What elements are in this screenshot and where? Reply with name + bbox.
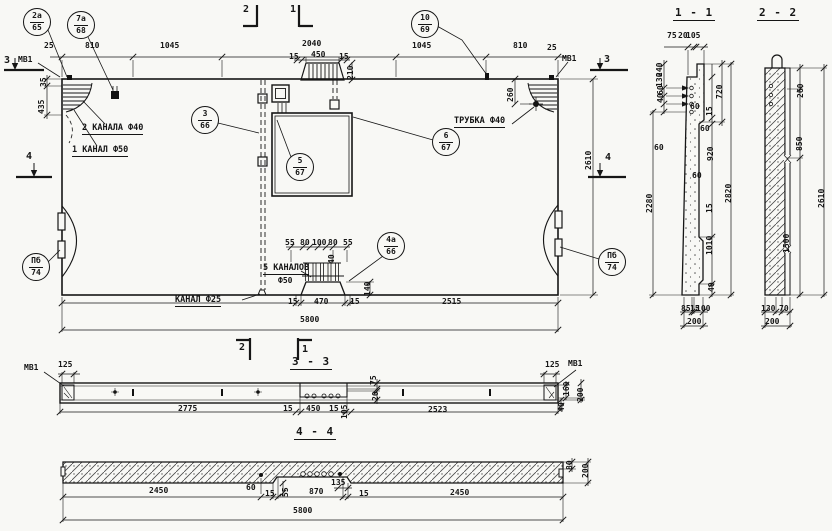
dim-200: 200: [576, 388, 585, 402]
drawing-linework: [0, 0, 832, 531]
callout-2a-65: 2а 65: [23, 8, 51, 36]
dim-2515: 2515: [442, 297, 461, 306]
dim-25: 25: [547, 43, 557, 52]
dim-2280: 2280: [645, 194, 654, 213]
dim-15: 15: [705, 203, 714, 213]
dim-105: 105: [686, 31, 700, 40]
dim-75: 75: [369, 375, 378, 385]
dim-60: 60: [246, 483, 256, 492]
dim-470: 470: [314, 297, 328, 306]
callout-sheet: 69: [420, 25, 430, 35]
label-mv1: МВ1: [24, 363, 38, 372]
dim-55: 55: [343, 238, 353, 247]
callout-4a-66: 4а 66: [377, 232, 405, 260]
label-tube-d40: ТРУБКА Ф40: [454, 116, 505, 128]
dim-35: 35: [39, 77, 48, 87]
dim-15: 15: [288, 297, 298, 306]
callout-pb-74-left: Пб 74: [22, 253, 50, 281]
dim-15: 15: [283, 404, 293, 413]
callout-sheet: 67: [295, 168, 305, 178]
label-mv1: МВ1: [568, 359, 582, 368]
callout-pb-74-right: Пб 74: [598, 248, 626, 276]
callout-sheet: 66: [386, 247, 396, 257]
dim-40: 40: [707, 282, 716, 292]
callout-position: 4а: [384, 235, 398, 247]
callout-7a-68: 7а 68: [67, 11, 95, 39]
cut-mark-1-top: 1: [290, 4, 296, 15]
leader-lines: [38, 26, 599, 300]
cut-mark-4-right: 4: [605, 152, 611, 163]
dim-15: 15: [329, 404, 339, 413]
dim-2610: 2610: [584, 151, 593, 170]
callout-sheet: 74: [31, 268, 41, 278]
section-4-4-profile: [63, 462, 563, 483]
callout-sheet: 74: [607, 263, 617, 273]
dim-5800: 5800: [293, 506, 312, 515]
label-5-channels: 5 КАНАЛОВ: [263, 263, 309, 275]
callout-position: 2а: [30, 11, 44, 23]
label-channel-d25: КАНАЛ Ф25: [175, 295, 221, 307]
callout-5-67: 5 67: [286, 153, 314, 181]
top-recess: [301, 63, 344, 80]
dim-260: 260: [796, 84, 805, 98]
dim-2610: 2610: [817, 189, 826, 208]
dim-200: 200: [765, 317, 779, 326]
dim-5800: 5800: [300, 315, 319, 324]
dim-130: 130: [761, 304, 775, 313]
dim-15: 15: [339, 52, 349, 61]
callout-sheet: 66: [200, 121, 210, 131]
cut-mark-2-bottom: 2: [239, 342, 245, 353]
section-title-1-1: 1 - 1: [673, 6, 715, 21]
cut-mark-1-bottom: 1: [302, 344, 308, 355]
dim-75: 75: [667, 31, 677, 40]
junction-box: [272, 85, 289, 102]
dim-80: 80: [565, 460, 574, 470]
dim-870: 870: [309, 487, 323, 496]
dim-25: 25: [44, 41, 54, 50]
dim-80: 80: [300, 238, 310, 247]
section-2-2-profile: [765, 68, 785, 295]
dim-260: 260: [506, 88, 515, 102]
dim-200: 200: [687, 317, 701, 326]
hidden-channel-lines: [261, 80, 265, 290]
dim-40: 40: [656, 93, 665, 103]
section-title-3-3: 3 - 3: [290, 355, 332, 370]
label-2-channels-d40: 2 КАНАЛА Ф40: [82, 123, 143, 135]
dim-450: 450: [311, 50, 325, 59]
label-mv1: МВ1: [18, 55, 32, 64]
callout-6-67: 6 67: [432, 128, 460, 156]
dim-15: 15: [265, 489, 275, 498]
dim-450: 450: [306, 404, 320, 413]
dim-55: 55: [285, 238, 295, 247]
cut-mark-4-left: 4: [26, 151, 32, 162]
dim-15: 15: [350, 297, 360, 306]
dim-2040: 2040: [302, 39, 321, 48]
section-title-2-2: 2 - 2: [757, 6, 799, 21]
dim-40: 40: [557, 402, 566, 412]
dim-1010: 1010: [705, 236, 714, 255]
dim-1045: 1045: [412, 41, 431, 50]
label-mv1: МВ1: [562, 54, 576, 63]
dim-15: 15: [705, 106, 714, 116]
dim-160: 160: [562, 382, 571, 396]
callout-sheet: 67: [441, 143, 451, 153]
dim-140: 140: [363, 282, 372, 296]
embed-anchor: [111, 91, 119, 99]
dim-2775: 2775: [178, 404, 197, 413]
dim-200: 200: [581, 464, 590, 478]
dim-210: 210: [346, 66, 355, 80]
dim-125: 125: [545, 360, 559, 369]
section-4-4: [60, 458, 591, 523]
dim-2450: 2450: [149, 486, 168, 495]
dim-60: 60: [700, 124, 710, 133]
dim-720: 720: [715, 85, 724, 99]
plan-view: [58, 63, 562, 295]
callout-position: 3: [198, 109, 212, 121]
dim-60: 60: [654, 143, 664, 152]
dim-1045: 1045: [160, 41, 179, 50]
bottom-plinth: [301, 282, 345, 295]
callout-position: 10: [418, 13, 432, 25]
dim-70: 70: [779, 304, 789, 313]
cut-mark-3-right: 3: [604, 54, 610, 65]
callout-position: Пб: [29, 256, 43, 268]
dim-60: 60: [692, 171, 702, 180]
callout-sheet: 68: [76, 26, 86, 36]
dim-920: 920: [706, 147, 715, 161]
cut-mark-2-top: 2: [243, 4, 249, 15]
label-1-channel-d50: 1 КАНАЛ Ф50: [72, 145, 128, 157]
dim-2820: 2820: [724, 184, 733, 203]
dim-100: 100: [312, 238, 326, 247]
dim-810: 810: [513, 41, 527, 50]
opening: [272, 113, 352, 196]
blueprint-sheet: 2а 65 7а 68 10 69 3 66 5 67 6 67 4а 66 П…: [0, 0, 832, 531]
dim-80: 80: [328, 238, 338, 247]
dim-55: 55: [281, 487, 290, 497]
label-5-channels-dia: Ф50: [278, 276, 292, 285]
dim-810: 810: [85, 41, 99, 50]
callout-position: Пб: [605, 251, 619, 263]
section-title-4-4: 4 - 4: [294, 425, 336, 440]
dim-435: 435: [37, 100, 46, 114]
dim-105: 105: [340, 405, 349, 419]
dim-60: 60: [690, 102, 700, 111]
callout-position: 6: [439, 131, 453, 143]
dim-20: 20: [371, 391, 380, 401]
dim-40: 40: [327, 254, 336, 264]
callout-position: 5: [293, 156, 307, 168]
dim-15: 15: [359, 489, 369, 498]
dim-125: 125: [58, 360, 72, 369]
callout-sheet: 65: [32, 23, 42, 33]
loop-top: [772, 55, 782, 68]
cut-mark-3-left: 3: [4, 55, 10, 66]
dim-850: 850: [795, 137, 804, 151]
dim-1500: 1500: [782, 234, 791, 253]
callout-3-66: 3 66: [191, 106, 219, 134]
dim-135: 135: [331, 478, 345, 487]
dim-2523: 2523: [428, 405, 447, 414]
callout-10-69: 10 69: [411, 10, 439, 38]
callout-position: 7а: [74, 14, 88, 26]
dim-2450: 2450: [450, 488, 469, 497]
dim-15: 15: [289, 52, 299, 61]
dim-100: 100: [696, 304, 710, 313]
